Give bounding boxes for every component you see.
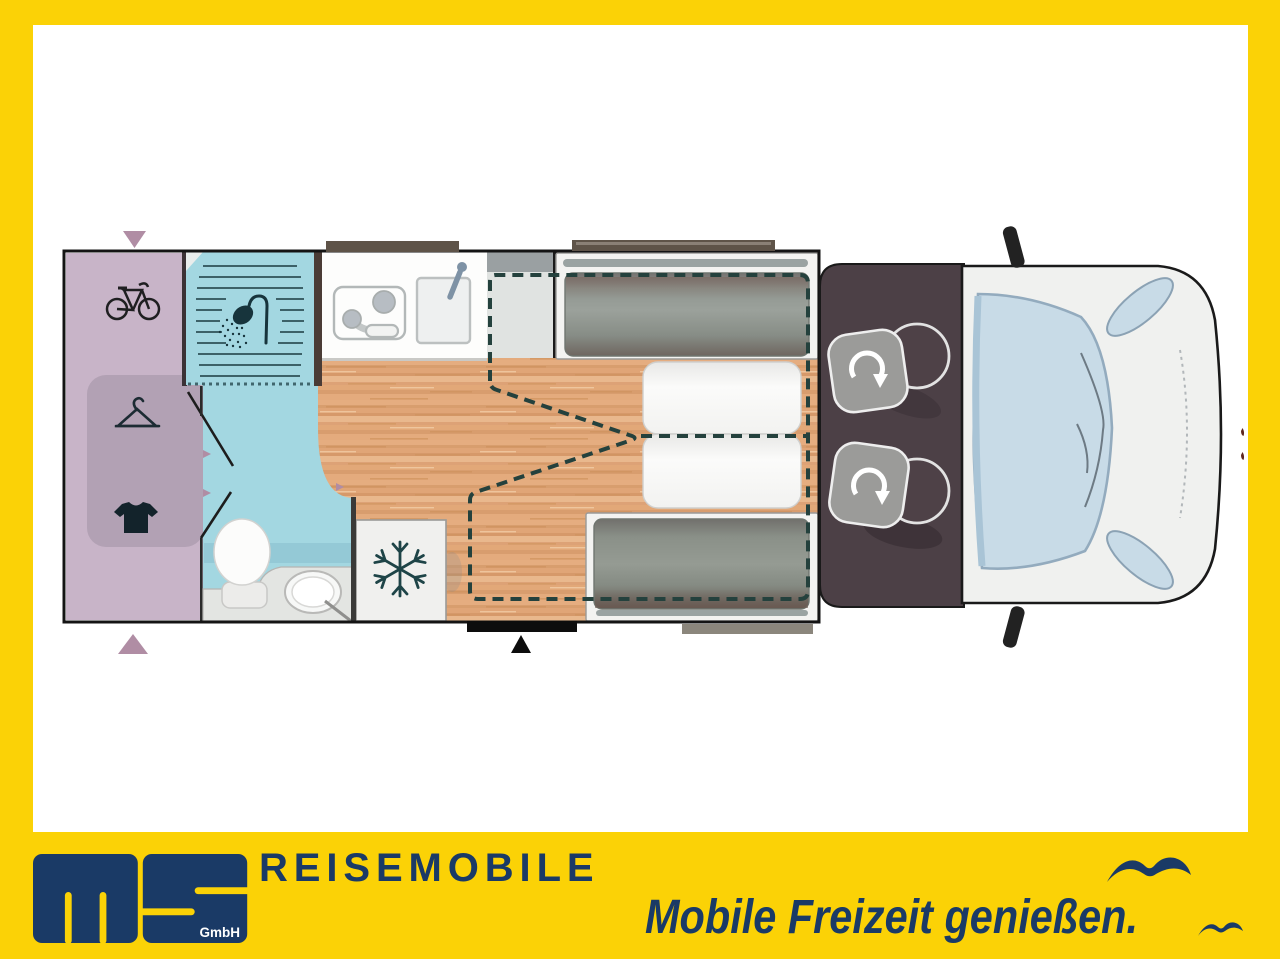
- svg-text:GmbH: GmbH: [200, 925, 241, 940]
- svg-text:Mobile Freizeit genießen.: Mobile Freizeit genießen.: [645, 891, 1138, 944]
- svg-text:REISEMOBILE: REISEMOBILE: [259, 846, 600, 890]
